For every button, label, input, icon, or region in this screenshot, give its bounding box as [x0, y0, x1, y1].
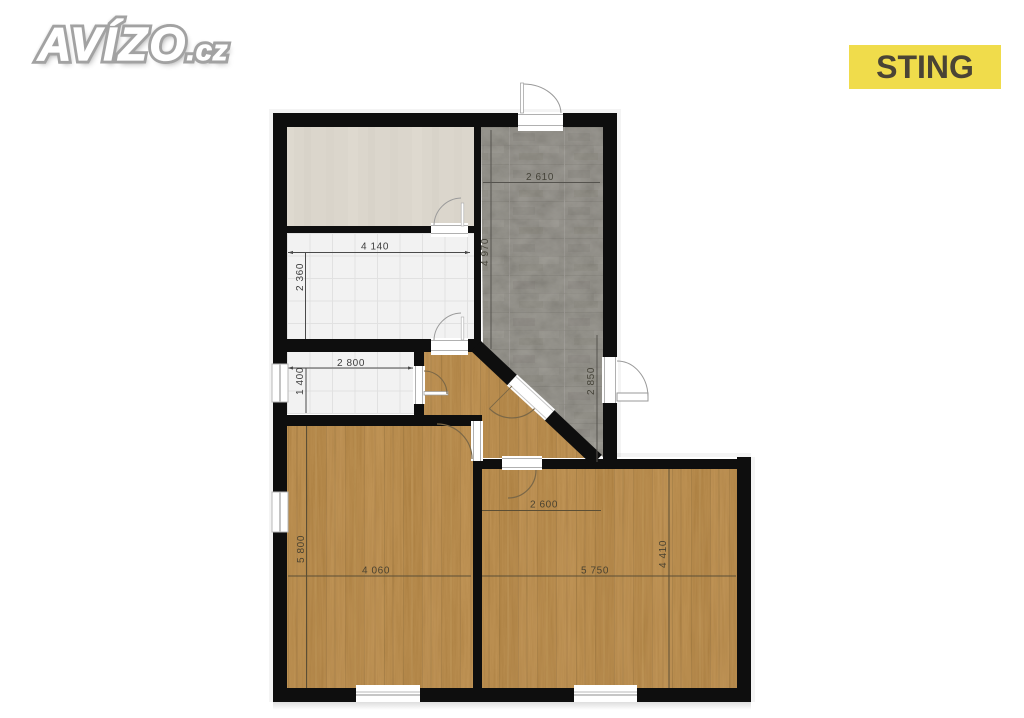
svg-text:5 750: 5 750	[581, 566, 609, 577]
svg-text:5 800: 5 800	[296, 535, 307, 563]
svg-text:2 850: 2 850	[586, 367, 597, 395]
svg-text:1 400: 1 400	[295, 367, 306, 395]
svg-text:2 600: 2 600	[530, 500, 558, 511]
svg-text:4 410: 4 410	[658, 540, 669, 568]
svg-text:4 060: 4 060	[362, 566, 390, 577]
svg-text:2 360: 2 360	[295, 263, 306, 291]
svg-text:2 800: 2 800	[337, 358, 365, 369]
svg-text:4 970: 4 970	[480, 238, 491, 266]
svg-text:4 140: 4 140	[361, 242, 389, 253]
svg-text:2 610: 2 610	[526, 172, 554, 183]
